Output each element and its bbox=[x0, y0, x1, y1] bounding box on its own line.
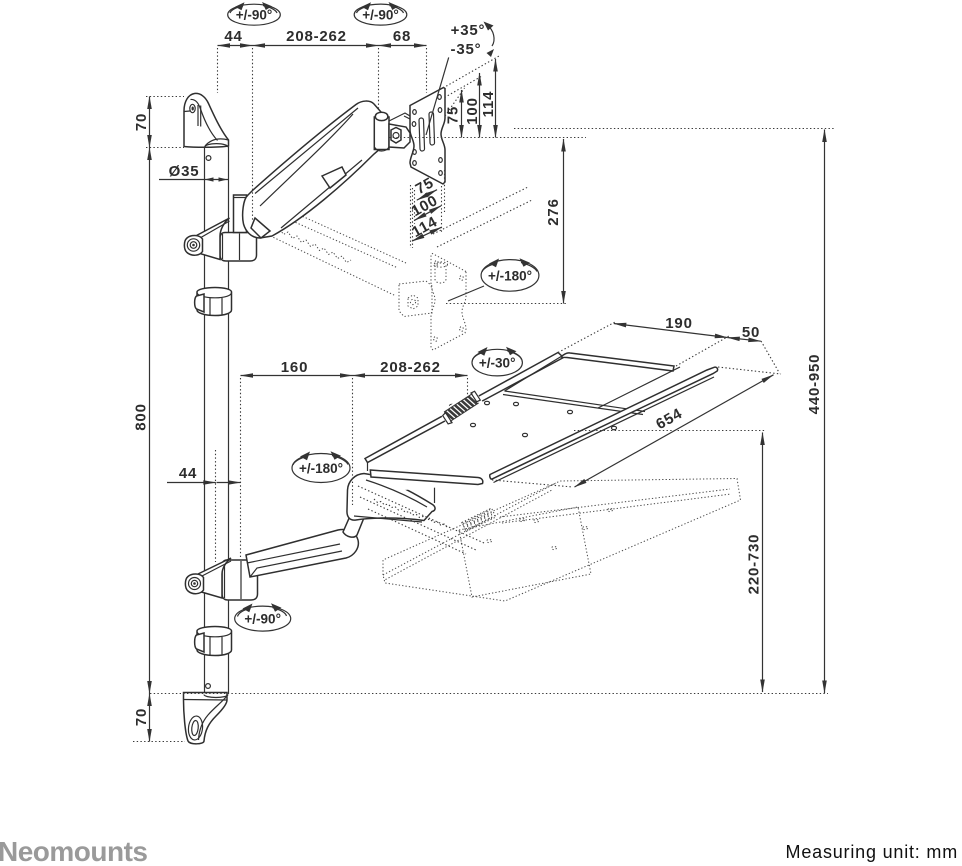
svg-text:208-262: 208-262 bbox=[380, 359, 441, 376]
svg-text:70: 70 bbox=[133, 708, 150, 726]
svg-text:+/-90°: +/-90° bbox=[236, 8, 273, 23]
svg-text:440-950: 440-950 bbox=[806, 354, 823, 415]
svg-text:75: 75 bbox=[445, 106, 462, 124]
svg-text:276: 276 bbox=[545, 198, 562, 225]
svg-text:800: 800 bbox=[133, 403, 150, 430]
svg-text:44: 44 bbox=[224, 28, 242, 45]
svg-text:100: 100 bbox=[464, 97, 481, 124]
svg-text:Neomounts: Neomounts bbox=[0, 836, 148, 866]
svg-text:-35°: -35° bbox=[451, 41, 482, 58]
svg-text:+/-90°: +/-90° bbox=[244, 612, 281, 627]
svg-text:44: 44 bbox=[179, 465, 197, 482]
svg-text:208-262: 208-262 bbox=[286, 28, 347, 45]
svg-text:220-730: 220-730 bbox=[746, 534, 763, 595]
svg-text:68: 68 bbox=[393, 28, 411, 45]
svg-text:+/-180°: +/-180° bbox=[299, 461, 343, 476]
svg-text:160: 160 bbox=[281, 359, 308, 376]
svg-text:Measuring unit: mm: Measuring unit: mm bbox=[786, 842, 958, 862]
svg-text:190: 190 bbox=[665, 315, 692, 332]
svg-text:70: 70 bbox=[133, 113, 150, 131]
svg-text:+/-180°: +/-180° bbox=[488, 269, 532, 284]
svg-text:Ø35: Ø35 bbox=[169, 163, 200, 180]
svg-text:+35°: +35° bbox=[451, 22, 486, 39]
svg-text:50: 50 bbox=[742, 324, 760, 341]
svg-text:114: 114 bbox=[480, 91, 497, 118]
svg-text:+/-30°: +/-30° bbox=[479, 356, 516, 371]
svg-text:+/-90°: +/-90° bbox=[362, 8, 399, 23]
